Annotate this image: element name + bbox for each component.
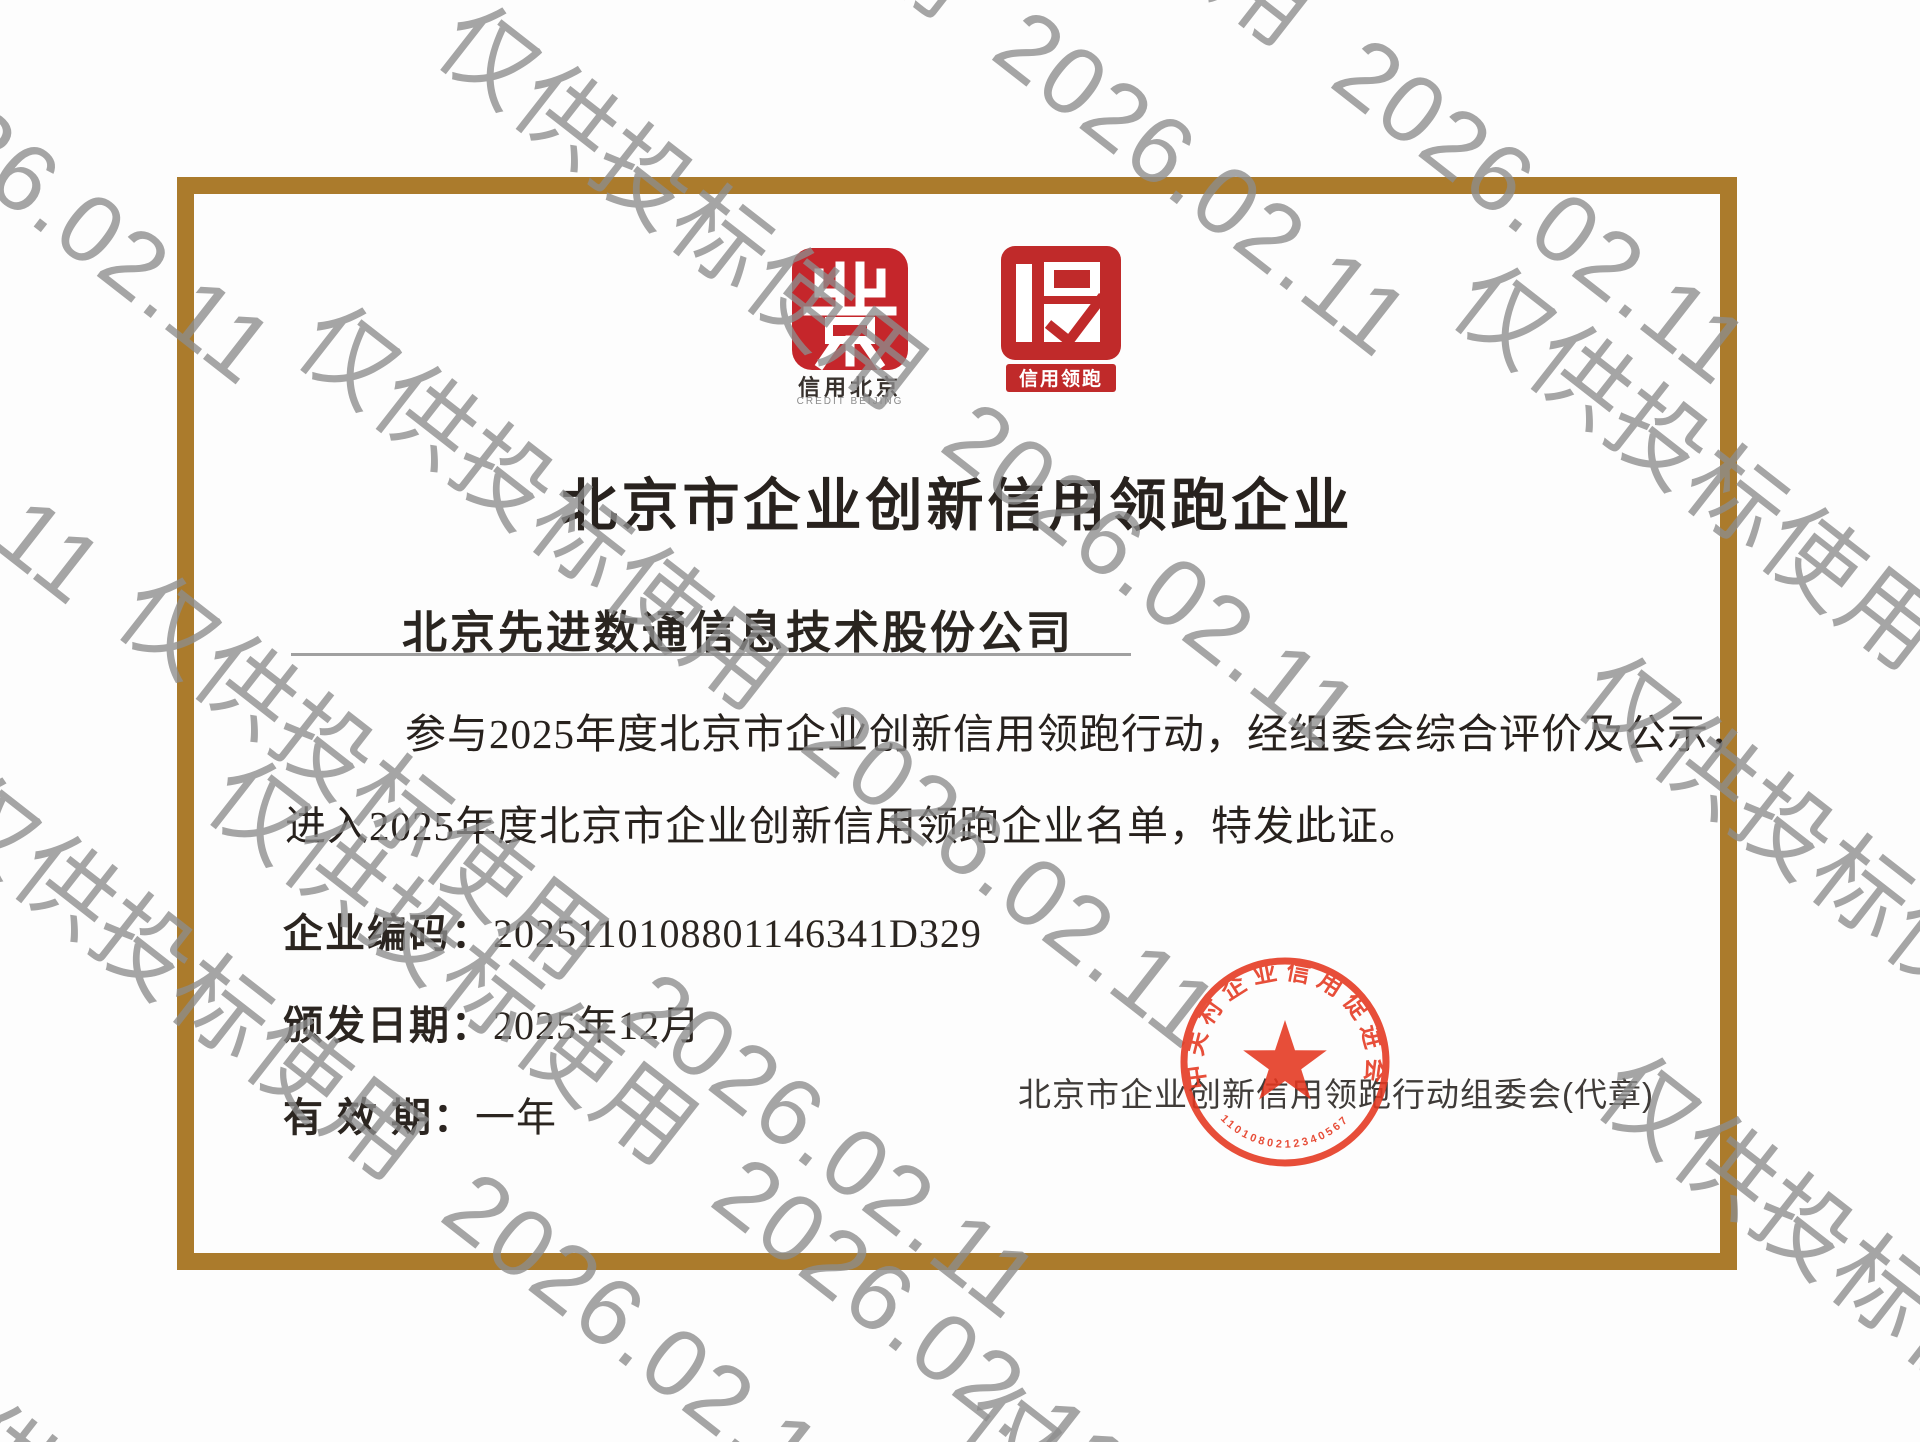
certificate-title: 北京市企业创新信用领跑企业 (177, 460, 1737, 542)
field-issue-date: 颁发日期：2025年12月 (283, 993, 701, 1051)
certificate-page: 信用北京 CREDIT BEIJING 信用领跑 北京市企业创新信用领跑企业 北… (0, 0, 1920, 1442)
credit-beijing-logo-icon (792, 248, 908, 375)
watermark-text: 仅供投标使用 2026.02.11 (0, 1330, 815, 1442)
watermark-text: 仅供投标使用 2026.02.11 (941, 1370, 1895, 1442)
field-enterprise-code: 企业编码：2025110108801146341D329 (283, 901, 982, 959)
field-label: 颁发日期： (283, 1003, 493, 1048)
body-text-line-2: 进入2025年度北京市企业创新信用领跑企业名单，特发此证。 (285, 792, 1421, 852)
watermark-text: 仅供投标使用 2026.02.11 (0, 0, 120, 621)
credit-beijing-logo-sublabel: CREDIT BEIJING (778, 396, 922, 407)
company-underline (291, 653, 1131, 656)
svg-text:1101080212340567: 1101080212340567 (1218, 1113, 1352, 1151)
field-value: 一年 (475, 1095, 557, 1140)
committee-seal: 中关村企业信用促进会 1101080212340567 (1163, 940, 1407, 1189)
seal-serial-digits: 1101080212340567 (1218, 1113, 1352, 1151)
field-label: 有 效 期： (283, 1095, 475, 1140)
credit-leader-banner-text: 信用领跑 (1019, 367, 1103, 390)
field-value: 2025年12月 (493, 1003, 701, 1048)
field-label: 企业编码： (283, 911, 493, 956)
company-name: 北京先进数通信息技术股份公司 (402, 596, 1074, 661)
star-icon (1243, 1020, 1327, 1100)
field-validity: 有 效 期：一年 (283, 1085, 557, 1143)
body-text-line-1: 参与2025年度北京市企业创新信用领跑行动，经组委会综合评价及公示， (405, 700, 1751, 760)
field-value: 2025110108801146341D329 (493, 911, 982, 956)
credit-leader-logo-icon: 信用领跑 (998, 246, 1124, 401)
